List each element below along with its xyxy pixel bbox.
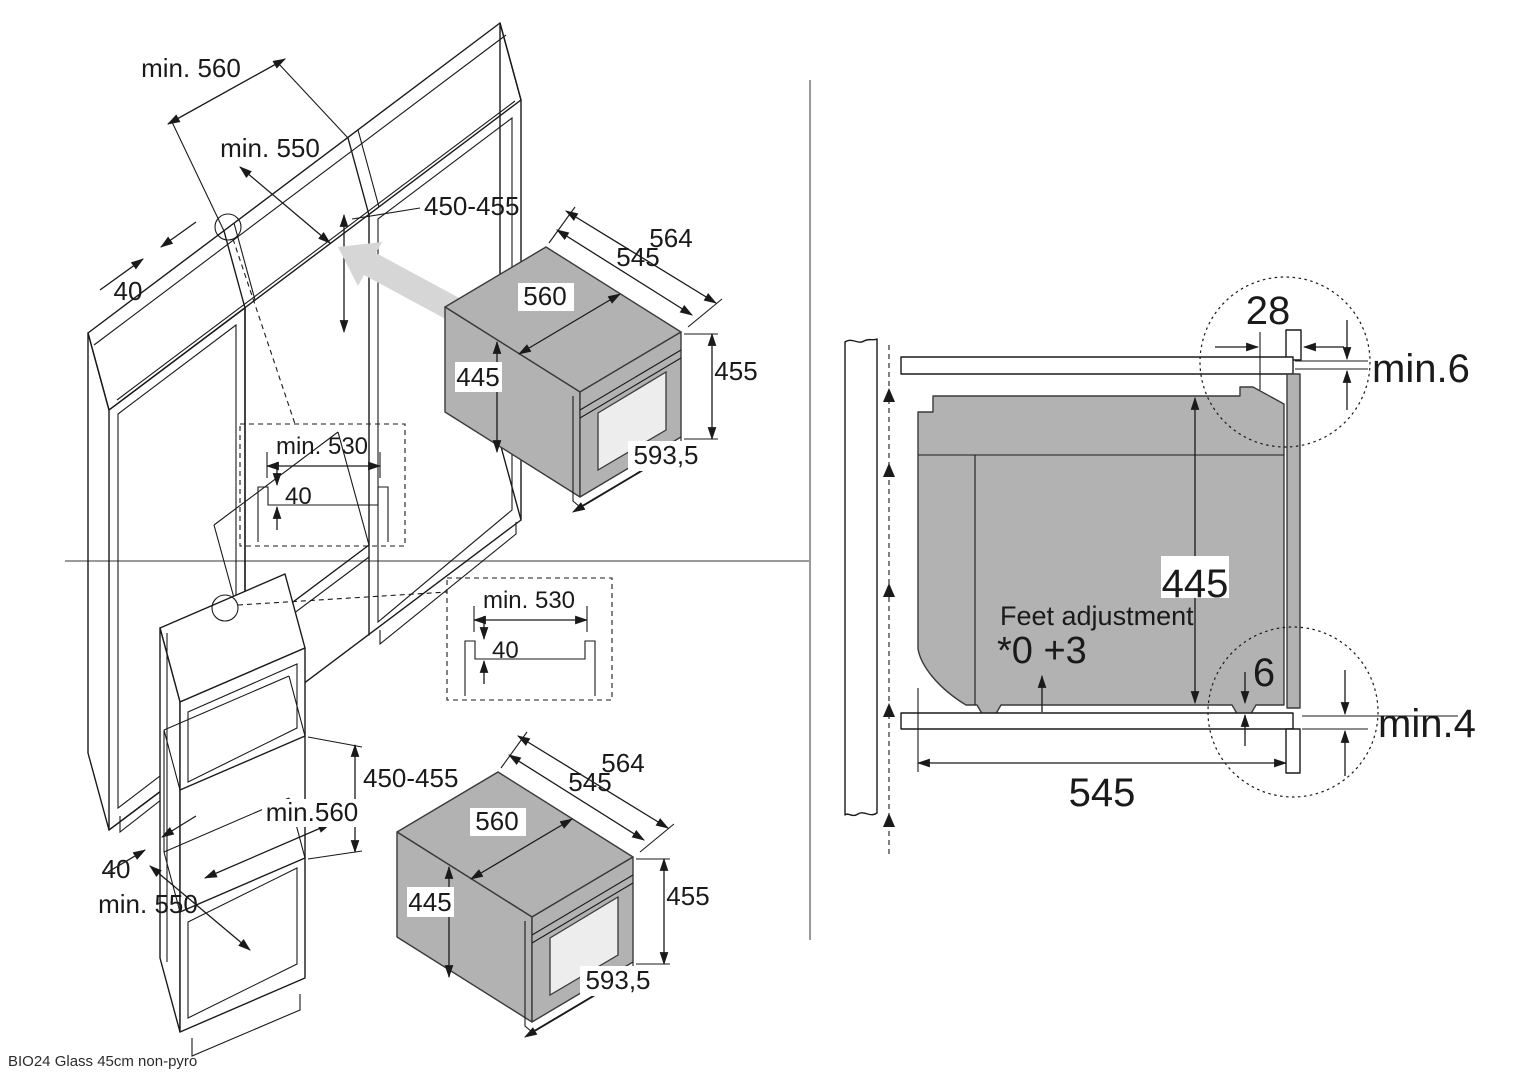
left-side-panel xyxy=(88,333,109,830)
niche-depth-label: min. 550 xyxy=(98,889,198,919)
installation-drawing-page: min. 560 min. 550 450-455 40 min. 530 40 xyxy=(0,0,1527,1079)
oven-front-width-label: 593,5 xyxy=(585,965,650,995)
lower-shelf xyxy=(901,713,1293,729)
cutout-detail-top: min. 530 40 xyxy=(240,424,405,546)
oven-body-section xyxy=(918,387,1284,717)
niche-depth-label: min. 550 xyxy=(220,133,320,163)
feet-adjustment-range: *0 +3 xyxy=(997,630,1087,672)
bottom-clearance-label: min.4 xyxy=(1378,702,1476,746)
tall-cabinet-front-face xyxy=(180,648,305,1032)
tall-cabinet-side-face xyxy=(160,628,180,1032)
body-height-label: 445 xyxy=(1162,562,1229,606)
drawing-caption: BIO24 Glass 45cm non-pyro xyxy=(8,1053,197,1070)
niche-width-label: min. 560 xyxy=(141,53,241,83)
oven-body-height-label: 445 xyxy=(408,887,451,917)
rail-width-label: 40 xyxy=(102,854,131,884)
top-clearance-label: min.6 xyxy=(1372,347,1470,391)
body-depth-label: 545 xyxy=(1069,771,1136,815)
upper-shelf xyxy=(901,357,1293,374)
cutout-detail-bottom: min. 530 40 xyxy=(447,578,612,700)
feet-adjustment-title: Feet adjustment xyxy=(1000,601,1194,631)
rail-width-label: 40 xyxy=(114,276,143,306)
oven-front-frame xyxy=(1287,374,1300,708)
oven-front-width-label: 593,5 xyxy=(633,440,698,470)
niche-height-label: 450-455 xyxy=(363,763,458,793)
front-frame-top xyxy=(1286,330,1301,360)
front-frame-depth-label: 28 xyxy=(1246,289,1291,333)
rear-wall-panel xyxy=(845,339,877,815)
oven-body-width-label: 560 xyxy=(523,281,566,311)
tall-cabinet-view: 450-455 min.560 40 min. 550 xyxy=(98,574,458,1056)
cutout-depth-label: 40 xyxy=(285,483,312,510)
niche-width-label: min.560 xyxy=(266,797,359,827)
oven-body-width-label: 560 xyxy=(475,806,518,836)
oven-body-height-label: 445 xyxy=(456,362,499,392)
oven-outer-depth-label: 564 xyxy=(649,223,692,253)
niche-height-label: 450-455 xyxy=(424,191,519,221)
cutout-width-label: min. 530 xyxy=(276,433,368,460)
oven-isometric-top: 560 545 564 445 455 593,5 xyxy=(445,207,758,512)
side-section-view: 28 min.6 445 Feet adjustment *0 +3 6 min… xyxy=(845,277,1476,858)
oven-front-height-label: 455 xyxy=(666,881,709,911)
lower-front-panel xyxy=(1286,729,1300,773)
oven-outer-depth-label: 564 xyxy=(601,748,644,778)
installation-diagram: min. 560 min. 550 450-455 40 min. 530 40 xyxy=(0,0,1527,1079)
oven-front-height-label: 455 xyxy=(714,356,757,386)
detail-leader-line xyxy=(233,239,295,424)
cutout-width-label: min. 530 xyxy=(483,587,575,614)
cutout-depth-label: 40 xyxy=(492,637,519,664)
bottom-gap-label: 6 xyxy=(1253,651,1275,695)
